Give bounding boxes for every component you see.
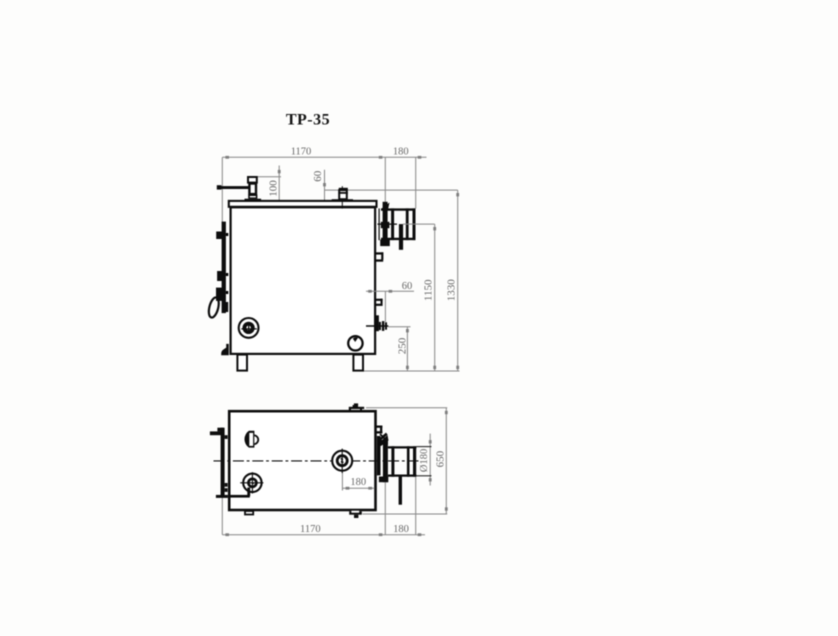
svg-text:180: 180: [393, 524, 409, 535]
svg-text:100: 100: [268, 180, 280, 197]
svg-text:60: 60: [402, 281, 413, 292]
svg-text:180: 180: [350, 477, 366, 488]
svg-text:1170: 1170: [300, 524, 321, 535]
svg-text:1330: 1330: [446, 279, 458, 302]
svg-text:ТР-35: ТР-35: [286, 112, 330, 129]
svg-text:1170: 1170: [291, 147, 312, 158]
svg-text:250: 250: [397, 337, 409, 354]
svg-text:Ø180: Ø180: [419, 449, 430, 472]
svg-text:60: 60: [312, 170, 324, 182]
svg-text:180: 180: [393, 146, 409, 157]
svg-text:1150: 1150: [423, 279, 435, 301]
svg-text:650: 650: [434, 450, 446, 467]
